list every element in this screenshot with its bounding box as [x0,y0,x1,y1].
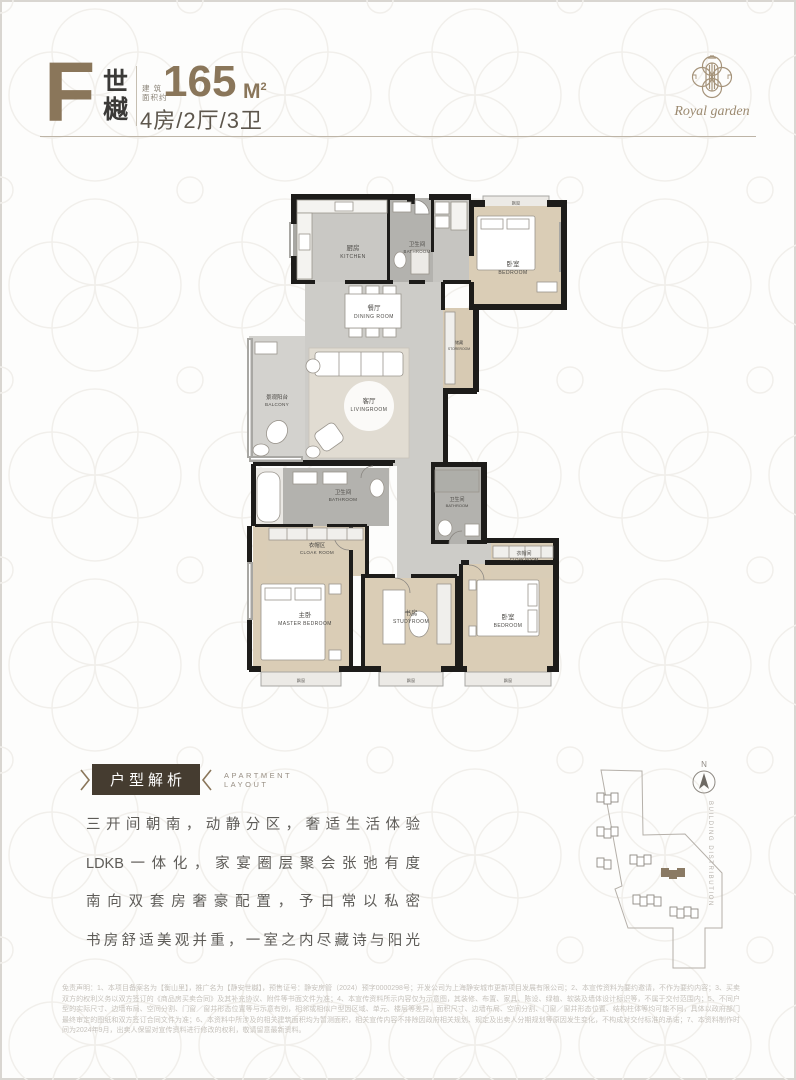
unit-type-letter: F [44,50,93,134]
svg-text:STUDYROOM: STUDYROOM [393,619,429,625]
svg-text:LIVINGROOM: LIVINGROOM [351,407,388,413]
svg-text:BEDROOM: BEDROOM [498,270,527,276]
analysis-paragraph: 三开间朝南，动静分区，奢适生活体验 LDKB一体化，家宴圈层聚会张弛有度 南向双… [86,806,420,960]
svg-text:卧室: 卧室 [507,259,521,268]
svg-text:DINING ROOM: DINING ROOM [354,314,394,320]
svg-text:衣帽间: 衣帽间 [516,550,531,557]
svg-text:CLOAK ROOM: CLOAK ROOM [300,550,334,555]
brand-logo: Royal garden [652,54,772,120]
svg-text:CLOAK ROOM: CLOAK ROOM [510,557,539,562]
room-count-spec: 4房/2厅/3卫 [140,103,263,135]
svg-text:餐厅: 餐厅 [368,303,382,312]
header-divider-line [136,66,137,126]
svg-text:BALCONY: BALCONY [265,402,289,407]
chevron-right-icon [78,767,92,793]
svg-text:KITCHEN: KITCHEN [340,254,365,260]
area-value: 165 [163,60,236,104]
area-unit: M2 [243,80,267,104]
svg-text:BEDROOM: BEDROOM [494,623,523,629]
svg-text:STOREROOM: STOREROOM [448,347,470,351]
svg-text:飘窗: 飘窗 [504,677,512,684]
north-compass-icon: N [693,760,715,793]
site-plan: N BUILDING DISTRIBUTION [575,755,765,970]
analysis-header: 户型解析 APARTMENT LAYOUT [78,764,292,795]
site-buildings [597,793,698,918]
site-highlight-building [661,868,685,879]
brand-emblem-icon [691,54,733,102]
analysis-badge: 户型解析 [92,764,200,795]
svg-text:书房: 书房 [405,608,418,617]
svg-text:BATHROOM: BATHROOM [329,497,358,502]
svg-text:主卧: 主卧 [299,610,313,619]
svg-text:卧室: 卧室 [502,612,516,621]
svg-text:景观阳台: 景观阳台 [266,393,289,401]
floor-plan: 厨房 KITCHEN 卫生间 BATHROOM 卧室 BEDROOM 餐厅 DI… [247,194,567,706]
unit-name-char-1: 世 [103,68,128,96]
svg-text:客厅: 客厅 [363,396,377,405]
svg-text:BATHROOM: BATHROOM [404,249,431,254]
floorplan-poster-page: { "colors":{"accent_brown":"#8a765a","ba… [0,0,796,1080]
svg-text:卫生间: 卫生间 [335,488,352,496]
svg-text:厨房: 厨房 [347,243,360,252]
svg-text:BATHROOM: BATHROOM [446,503,469,508]
paragraph-line-4: 书房舒适美观并重，一室之内尽藏诗与阳光 [86,922,420,961]
paragraph-line-1: 三开间朝南，动静分区，奢适生活体验 [86,806,420,845]
unit-type-name: 世 樾 [103,68,128,124]
paragraph-line-3: 南向双套房奢豪配置，予日常以私密 [86,883,420,922]
svg-text:飘窗: 飘窗 [297,677,305,684]
header-rule [40,136,756,137]
analysis-subtitle: APARTMENT LAYOUT [224,771,292,789]
svg-text:N: N [701,760,707,769]
svg-text:储藏: 储藏 [455,339,464,346]
site-caption-vertical: BUILDING DISTRIBUTION [707,801,713,907]
svg-text:飘窗: 飘窗 [512,200,520,207]
svg-text:MASTER BEDROOM: MASTER BEDROOM [278,621,332,627]
svg-text:衣帽区: 衣帽区 [309,541,326,549]
svg-text:卫生间: 卫生间 [449,496,464,503]
svg-text:飘窗: 飘窗 [407,677,415,684]
unit-name-char-2: 樾 [103,96,128,124]
chevron-left-icon [200,767,214,793]
svg-text:卫生间: 卫生间 [409,240,426,248]
paragraph-line-2: LDKB一体化，家宴圈层聚会张弛有度 [86,845,420,884]
brand-script-name: Royal garden [652,104,772,120]
disclaimer-fine-print: 免责声明：1、本项目备案名为【衡山里】，推广名为【静安世樾】，预售证号：静安房管… [62,984,740,1037]
